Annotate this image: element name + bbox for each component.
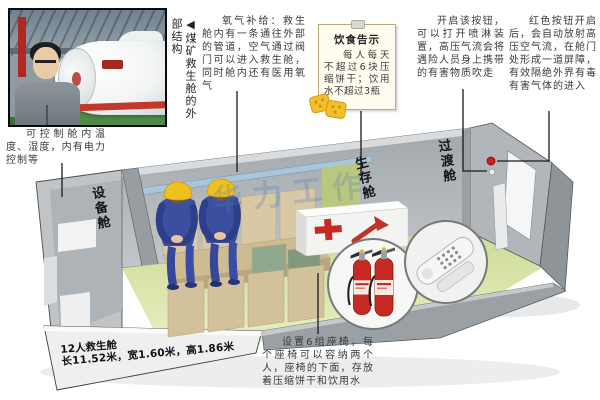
biscuit-icon (325, 100, 347, 120)
callout-climate-control: 可控制舱内温度、湿度，内有电力控制等 (6, 128, 106, 167)
photo-presenter-glasses (35, 60, 56, 63)
callout-oxygen-supply: 氧气补给：救生舱内有一条通往外部的管道，空气通过阀门可以进入救生舱，同时舱内还有… (202, 15, 306, 93)
capsule-exterior-photo (8, 8, 167, 127)
photo-presenter-zipper (46, 105, 48, 127)
food-notice-card: 饮食告示 每人每天不超过6块压缩饼干；饮用水不超过3瓶 (318, 24, 396, 110)
photo-presenter-head (33, 47, 59, 79)
callout-red-button: 红色按钮开启后，会自动放射高压空气流，在舱门处形成一道屏障，有效隔绝外界有毒有害… (509, 15, 597, 93)
food-notice-body: 每人每天不超过6块压缩饼干；饮用水不超过3瓶 (319, 50, 395, 98)
callout-spray-button: 开启该按钮，可以打开喷淋装置，高压气流会将遇险人员身上携带的有害物质吹走 (417, 15, 505, 80)
infographic-mine-rescue-capsule: 华力工作 ◀煤矿救生舱的外部结构 可控制舱内温度、湿度，内有电力控制等 氧气补给… (0, 0, 600, 400)
white-spray-button (489, 169, 495, 175)
photo-presenter-jacket (15, 82, 80, 127)
telephone-inset (405, 221, 487, 303)
photo-capsule-logo (102, 60, 123, 69)
food-notice-title: 饮食告示 (319, 32, 395, 47)
callout-seats: 设置6组座椅，每个座椅可以容纳两个人，座椅的下面，存放着压缩饼干和饮用水 (262, 336, 374, 388)
photo-caption: ◀煤矿救生舱的外部结构 (169, 18, 197, 130)
photo-presenter (15, 47, 80, 127)
extinguisher-inset (328, 239, 418, 329)
note-pin (351, 20, 365, 29)
red-spray-button (487, 157, 495, 165)
